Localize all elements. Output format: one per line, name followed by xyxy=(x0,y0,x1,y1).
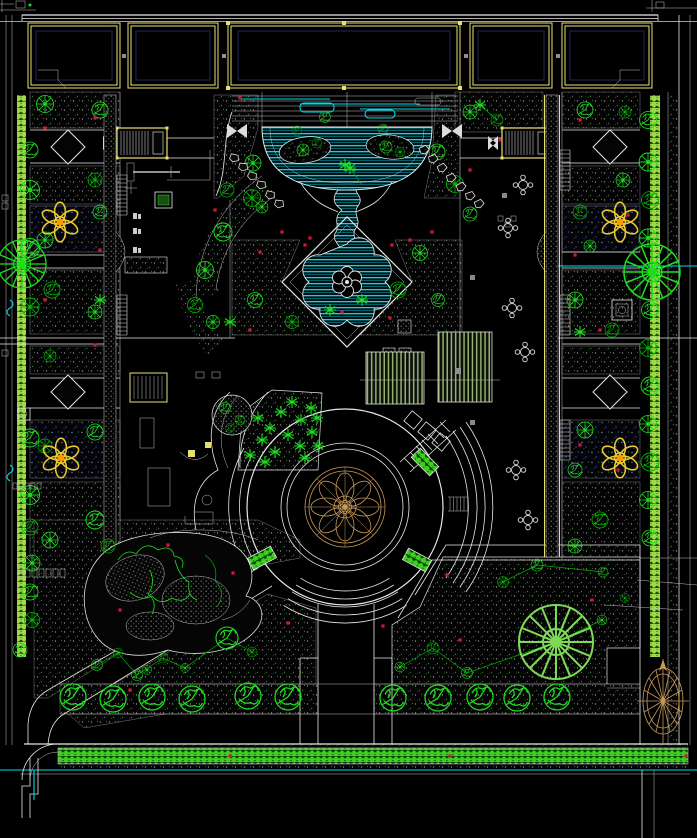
tree-symbol xyxy=(621,594,630,603)
tree-symbol xyxy=(567,292,583,308)
tree-symbol xyxy=(21,486,40,505)
tree-symbol xyxy=(297,144,309,156)
tree-symbol xyxy=(143,666,152,675)
tree-symbol xyxy=(584,240,596,252)
tree-symbol xyxy=(640,340,657,357)
tree-symbol xyxy=(463,105,477,119)
pergola-trellis xyxy=(438,332,492,402)
tree-symbol xyxy=(113,648,123,658)
red-flower-marker xyxy=(430,230,433,233)
red-flower-marker xyxy=(468,168,471,171)
tree-symbol xyxy=(244,190,261,207)
tree-symbol xyxy=(616,173,630,187)
tree-symbol xyxy=(197,262,214,279)
tree-symbol xyxy=(88,173,102,187)
red-flower-marker xyxy=(93,343,96,346)
red-flower-marker xyxy=(684,754,687,757)
tree-symbol xyxy=(395,662,405,672)
lamp-symbol xyxy=(205,442,211,448)
rockery-mound xyxy=(84,530,262,655)
red-flower-marker xyxy=(248,328,251,331)
red-flower-marker xyxy=(98,248,101,251)
red-flower-marker xyxy=(280,230,283,233)
red-flower-marker xyxy=(445,573,448,576)
red-flower-marker xyxy=(578,118,581,121)
tree-symbol xyxy=(21,298,39,316)
tree-symbol xyxy=(413,246,428,261)
tree-symbol xyxy=(24,555,40,571)
tree-symbol xyxy=(597,615,607,625)
red-flower-marker xyxy=(286,621,289,624)
red-flower-marker xyxy=(573,253,576,256)
left-greenway-band xyxy=(17,95,26,657)
bottom-hedge-band xyxy=(58,748,688,764)
red-flower-marker xyxy=(118,608,121,611)
tree-symbol xyxy=(577,422,593,438)
right-greenway-band xyxy=(650,95,660,657)
red-flower-marker xyxy=(43,298,46,301)
pergola-column xyxy=(398,320,411,333)
red-flower-marker xyxy=(390,243,393,246)
tree-symbol xyxy=(640,416,657,433)
tree-symbol xyxy=(639,153,657,171)
tree-symbol xyxy=(181,664,190,673)
red-flower-marker xyxy=(498,138,501,141)
red-flower-marker xyxy=(166,543,169,546)
fountain-flower xyxy=(333,267,362,298)
red-flower-marker xyxy=(228,754,231,757)
tree-symbol xyxy=(395,147,405,157)
red-flower-marker xyxy=(616,468,619,471)
red-flower-marker xyxy=(448,754,451,757)
mid-stoop xyxy=(125,257,167,273)
red-flower-marker xyxy=(340,310,343,313)
tree-symbol xyxy=(42,532,58,548)
planting-mound xyxy=(212,395,252,435)
tree-symbol xyxy=(519,605,593,679)
red-flower-marker xyxy=(626,213,629,216)
red-flower-marker xyxy=(238,96,241,99)
red-flower-marker xyxy=(213,208,216,211)
tree-symbol xyxy=(37,96,54,113)
tree-symbol xyxy=(286,316,299,329)
red-flower-marker xyxy=(598,328,601,331)
tree-symbol xyxy=(568,539,582,553)
tree-symbol xyxy=(247,647,257,657)
cad-landscape-plan-canvas xyxy=(0,0,697,838)
red-flower-marker xyxy=(578,443,581,446)
red-flower-marker xyxy=(590,598,593,601)
mandala-medallion xyxy=(305,467,385,547)
tree-symbol xyxy=(44,350,56,362)
lamp-symbol xyxy=(188,450,195,457)
tree-symbol xyxy=(207,316,220,329)
red-flower-marker xyxy=(308,236,311,239)
red-flower-marker xyxy=(388,316,391,319)
tree-symbol xyxy=(640,492,657,509)
tree-symbol xyxy=(624,244,680,300)
red-flower-marker xyxy=(303,243,306,246)
red-flower-marker xyxy=(231,571,234,574)
red-flower-marker xyxy=(43,126,46,129)
red-flower-marker xyxy=(381,624,384,627)
red-flower-marker xyxy=(458,638,461,641)
tree-symbol xyxy=(619,106,631,118)
red-flower-marker xyxy=(258,250,261,253)
tree-symbol xyxy=(498,577,509,588)
tree-symbol xyxy=(21,181,40,200)
tree-symbol xyxy=(88,305,102,319)
red-flower-marker xyxy=(128,688,131,691)
tree-symbol xyxy=(25,613,40,628)
site-plan-drawing xyxy=(0,0,697,838)
pergola-trellis xyxy=(366,352,424,404)
red-flower-marker xyxy=(93,116,96,119)
tree-symbol xyxy=(256,201,268,213)
red-flower-marker xyxy=(408,238,411,241)
